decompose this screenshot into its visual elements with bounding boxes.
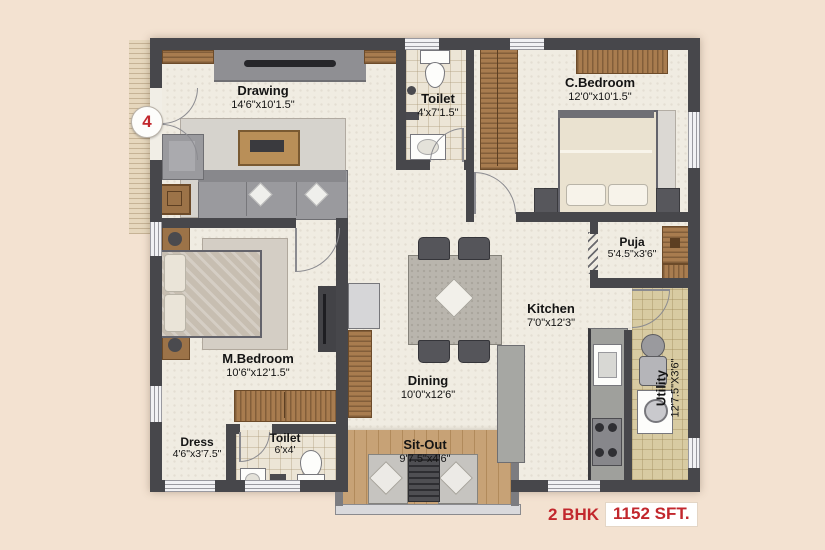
room-label-dining: Dining 10'0"x12'6" bbox=[401, 374, 455, 401]
window bbox=[245, 480, 300, 492]
puja-symbol bbox=[670, 238, 680, 248]
wardrobe-divider bbox=[497, 46, 498, 166]
tv-unit bbox=[244, 60, 336, 67]
window bbox=[150, 386, 162, 422]
wall bbox=[688, 38, 700, 492]
footer: 2 BHK 1152 SFT. bbox=[548, 503, 697, 526]
folding-door bbox=[588, 232, 598, 274]
tall-wood-unit bbox=[348, 330, 372, 418]
sofa-seam bbox=[296, 182, 297, 216]
cabinet bbox=[348, 283, 380, 329]
side-table-inlay bbox=[167, 191, 182, 206]
window bbox=[165, 480, 215, 492]
window bbox=[688, 438, 700, 468]
wall bbox=[150, 38, 162, 90]
pillow bbox=[164, 254, 186, 292]
room-label-c-bedroom: C.Bedroom 12'0"x10'1.5" bbox=[565, 76, 635, 103]
dining-chair bbox=[458, 340, 490, 363]
room-label-sit-out: Sit-Out 9'7.5"x4'6" bbox=[399, 438, 450, 465]
lamp bbox=[168, 232, 182, 246]
dining-chair bbox=[458, 237, 490, 260]
entrance-marker-number: 4 bbox=[142, 112, 151, 132]
wall bbox=[396, 160, 430, 170]
room-label-dress: Dress 4'6"x3'7.5" bbox=[173, 436, 222, 461]
area-value: 1152 SFT. bbox=[613, 504, 690, 523]
sofa-backrest bbox=[198, 170, 346, 182]
m-bedroom-wardrobe bbox=[234, 390, 338, 422]
window bbox=[150, 222, 162, 256]
pillow bbox=[608, 184, 648, 206]
wall bbox=[516, 212, 700, 222]
burner bbox=[608, 423, 617, 432]
pillow bbox=[164, 294, 186, 332]
wall bbox=[466, 160, 474, 222]
wall bbox=[466, 38, 474, 160]
window bbox=[510, 38, 544, 50]
coffee-table-tray bbox=[250, 140, 284, 152]
sit-out-railing bbox=[335, 504, 521, 515]
door-leaf bbox=[474, 172, 476, 214]
room-label-puja: Puja 5'4.5"x3'6" bbox=[608, 236, 657, 261]
shower-icon bbox=[407, 86, 416, 95]
wood-accent bbox=[162, 50, 214, 64]
wall bbox=[590, 278, 700, 288]
window bbox=[405, 38, 439, 50]
room-label-drawing: Drawing 14'6"x10'1.5" bbox=[231, 84, 294, 111]
dining-chair bbox=[418, 340, 450, 363]
area-badge: 1152 SFT. bbox=[606, 503, 697, 526]
burner bbox=[595, 448, 604, 457]
kitchen-partition-counter bbox=[497, 345, 525, 463]
room-label-toilet-top: Toilet 4'x7'1.5" bbox=[417, 92, 458, 119]
duvet-fold bbox=[560, 150, 652, 153]
burner bbox=[595, 423, 604, 432]
room-label-m-bedroom: M.Bedroom 10'6"x12'1.5" bbox=[222, 352, 294, 379]
window bbox=[688, 112, 700, 168]
dining-chair bbox=[418, 237, 450, 260]
lamp bbox=[168, 338, 182, 352]
door-leaf bbox=[295, 228, 297, 272]
entrance-marker: 4 bbox=[131, 106, 163, 138]
room-label-utility: Utility 12'7.5"X3'6" bbox=[655, 358, 682, 417]
c-bedroom-headboard bbox=[558, 110, 654, 118]
room-label-kitchen: Kitchen 7'0"x12'3" bbox=[527, 302, 575, 329]
wall bbox=[624, 330, 632, 480]
floor-plan-canvas: Drawing 14'6"x10'1.5" Toilet 4'x7'1.5" C… bbox=[0, 0, 825, 550]
wall bbox=[396, 38, 406, 168]
sofa-seam bbox=[246, 182, 247, 216]
tv-screen bbox=[323, 294, 326, 344]
c-bedroom-wardrobe bbox=[576, 48, 668, 74]
door-leaf bbox=[632, 289, 670, 291]
wardrobe-louvered bbox=[480, 44, 518, 170]
pillow bbox=[566, 184, 606, 206]
wall bbox=[150, 218, 296, 228]
door-leaf bbox=[462, 128, 464, 162]
door-leaf bbox=[239, 432, 241, 462]
wall bbox=[336, 218, 348, 492]
room-label-toilet-bottom: Toilet 6'x4' bbox=[269, 432, 300, 457]
wall bbox=[226, 424, 236, 492]
wall bbox=[511, 480, 700, 492]
window bbox=[548, 480, 600, 492]
bhk-label: 2 BHK bbox=[548, 505, 599, 525]
wardrobe-divider bbox=[284, 392, 285, 418]
wood-accent bbox=[364, 50, 398, 64]
burner bbox=[608, 448, 617, 457]
wall bbox=[590, 222, 598, 234]
m-bedroom-tv-panel bbox=[318, 286, 336, 352]
wall bbox=[150, 158, 162, 492]
geyser bbox=[641, 334, 665, 358]
kitchen-sink-basin bbox=[598, 352, 617, 378]
